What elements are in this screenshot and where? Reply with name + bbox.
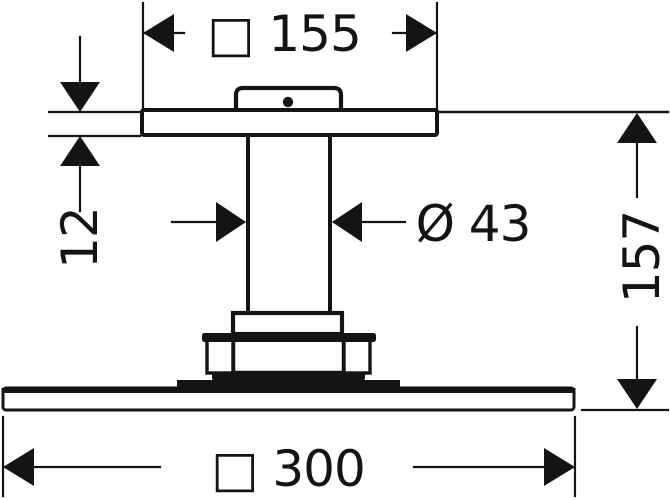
collar-left-tab	[207, 340, 233, 373]
connector-screw-dot	[283, 97, 293, 107]
arrowhead-right-icon	[406, 14, 437, 52]
shower-technical-drawing: □ 155 12 Ø 43 157	[0, 0, 670, 500]
dimension-plate-thickness: 12	[49, 37, 140, 269]
arrowhead-left-icon	[332, 202, 362, 242]
arrowhead-left-icon	[143, 14, 174, 52]
arrowhead-down-icon	[617, 379, 657, 409]
dimension-label-plate-thickness: 12	[51, 207, 109, 269]
collar-right-tab	[344, 340, 370, 373]
arrowhead-right-icon	[544, 448, 575, 486]
dimension-bottom-width: □ 300	[3, 417, 575, 498]
dimension-label-pipe-diameter: Ø 43	[416, 195, 531, 253]
collar-base	[212, 372, 365, 381]
pipe-nut	[233, 313, 342, 334]
dimension-pipe-diameter: Ø 43	[172, 195, 530, 253]
arrowhead-right-icon	[216, 202, 246, 242]
arrowhead-up-icon	[617, 113, 657, 143]
dimension-overall-height: 157	[582, 113, 670, 410]
collar-body	[234, 339, 343, 372]
dimension-label-bottom-width: □ 300	[211, 440, 365, 498]
ceiling-plate	[142, 110, 437, 135]
dimension-top-width: □ 155	[143, 3, 437, 108]
arrowhead-down-icon	[60, 82, 100, 112]
arrowhead-left-icon	[3, 448, 34, 486]
technical-drawing-canvas: □ 155 12 Ø 43 157	[0, 0, 670, 500]
dimension-label-overall-height: 157	[613, 211, 670, 303]
collar-flange	[202, 333, 376, 342]
arrowhead-up-icon	[60, 136, 100, 166]
dimension-label-top-width: □ 155	[207, 5, 361, 63]
